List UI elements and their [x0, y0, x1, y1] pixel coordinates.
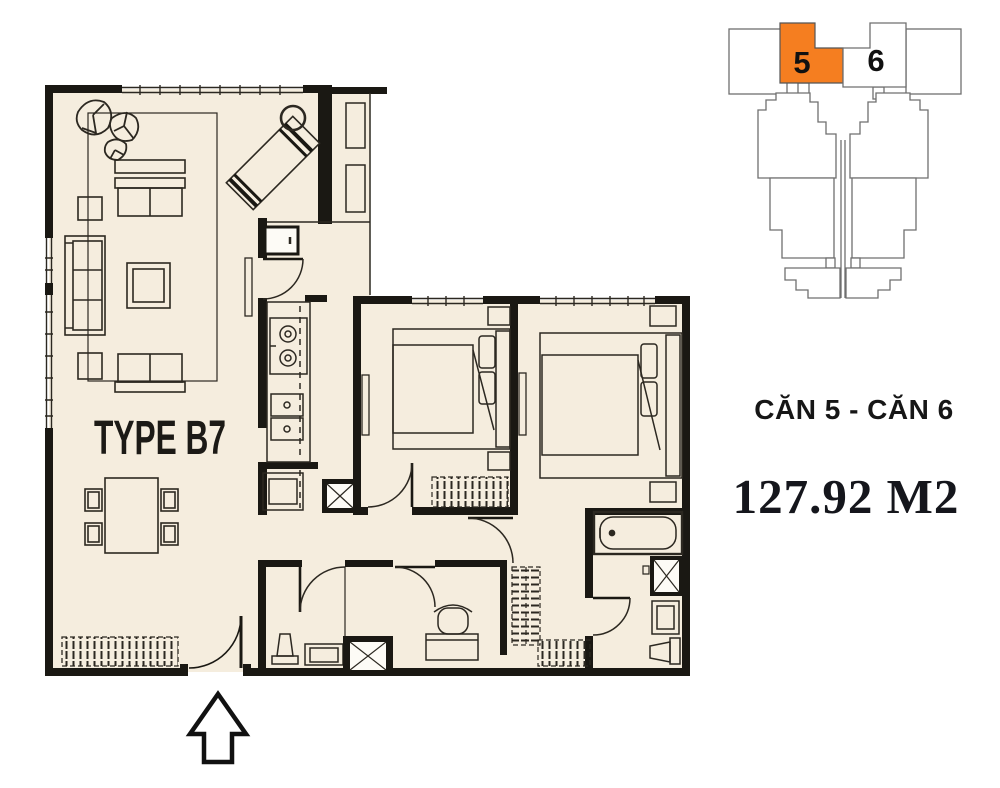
- floor-plan: TYPE B7: [0, 0, 720, 788]
- shaft: [322, 479, 358, 513]
- area-text: 127.92 M2: [700, 468, 992, 525]
- entrance-arrow: [190, 694, 246, 762]
- unit-5-label: 5: [793, 45, 810, 80]
- unit-6-label: 6: [867, 43, 884, 78]
- unit-5-highlight: [780, 23, 843, 83]
- wardrobe: [538, 640, 590, 666]
- shower-icon: [343, 636, 393, 676]
- unit-names-text: CĂN 5 - CĂN 6: [720, 394, 988, 426]
- plan-type-label: TYPE B7: [94, 410, 226, 464]
- mat: [432, 477, 508, 507]
- building-key-map: 5 6: [718, 10, 970, 302]
- svg-text:TYPE B7: TYPE B7: [94, 410, 226, 464]
- floor-plan-page: TYPE B7: [0, 0, 1000, 788]
- washing-machine: [265, 227, 298, 254]
- shoe-cabinet: [62, 637, 178, 666]
